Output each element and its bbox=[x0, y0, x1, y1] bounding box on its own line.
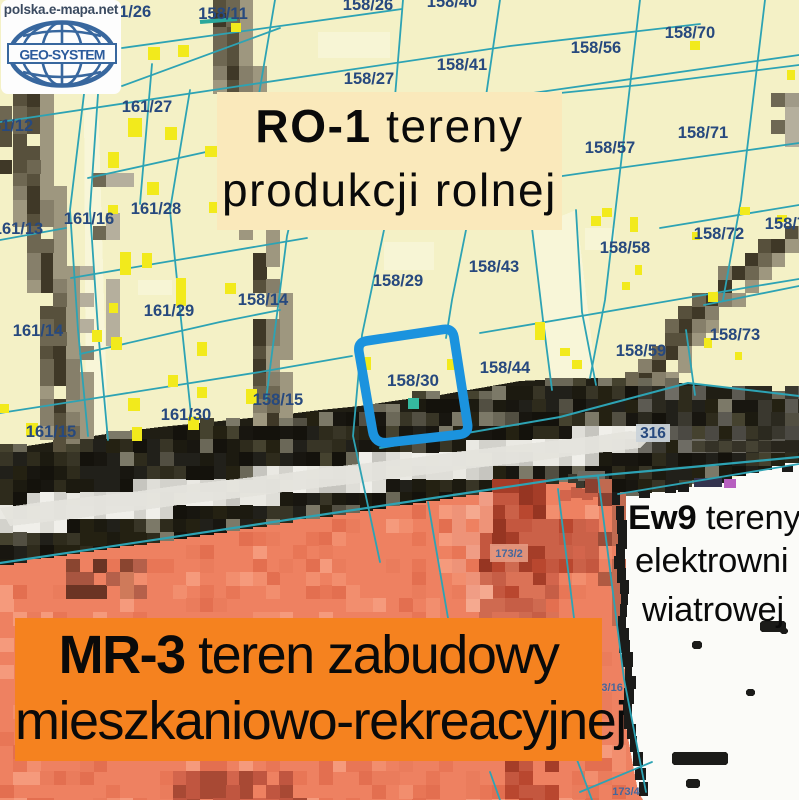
svg-text:158/73: 158/73 bbox=[765, 215, 799, 233]
svg-text:158/26: 158/26 bbox=[343, 0, 393, 14]
svg-text:158/15: 158/15 bbox=[253, 391, 303, 409]
svg-text:161/14: 161/14 bbox=[13, 322, 64, 340]
svg-text:316: 316 bbox=[640, 425, 666, 442]
svg-text:158/58: 158/58 bbox=[600, 239, 650, 257]
svg-text:161/30: 161/30 bbox=[161, 406, 211, 424]
svg-text:158/41: 158/41 bbox=[437, 56, 487, 74]
svg-text:161/13: 161/13 bbox=[0, 220, 43, 238]
svg-text:158/72: 158/72 bbox=[694, 225, 744, 243]
svg-text:161/29: 161/29 bbox=[144, 302, 194, 320]
svg-text:158/27: 158/27 bbox=[344, 70, 394, 88]
svg-text:GEO-SYSTEM: GEO-SYSTEM bbox=[19, 47, 104, 63]
svg-text:158/14: 158/14 bbox=[238, 291, 289, 309]
svg-text:161/27: 161/27 bbox=[122, 98, 172, 116]
svg-text:158/73: 158/73 bbox=[710, 326, 760, 344]
svg-text:173/2: 173/2 bbox=[495, 548, 523, 560]
svg-text:158/56: 158/56 bbox=[571, 39, 621, 57]
svg-text:158/40: 158/40 bbox=[427, 0, 477, 11]
svg-text:161/12: 161/12 bbox=[0, 117, 33, 135]
svg-text:158/43: 158/43 bbox=[469, 258, 519, 276]
svg-text:158/11: 158/11 bbox=[198, 5, 248, 23]
svg-text:158/44: 158/44 bbox=[480, 359, 531, 377]
svg-text:158/57: 158/57 bbox=[585, 139, 635, 157]
svg-text:161/15: 161/15 bbox=[26, 423, 76, 441]
svg-text:161/28: 161/28 bbox=[131, 200, 181, 218]
svg-text:158/59: 158/59 bbox=[616, 342, 666, 360]
svg-text:158/71: 158/71 bbox=[678, 124, 728, 142]
svg-text:158/30: 158/30 bbox=[387, 371, 439, 390]
svg-text:158/29: 158/29 bbox=[373, 272, 423, 290]
svg-text:161/16: 161/16 bbox=[64, 210, 114, 228]
svg-text:173/4: 173/4 bbox=[612, 786, 640, 798]
svg-text:158/70: 158/70 bbox=[665, 24, 715, 42]
